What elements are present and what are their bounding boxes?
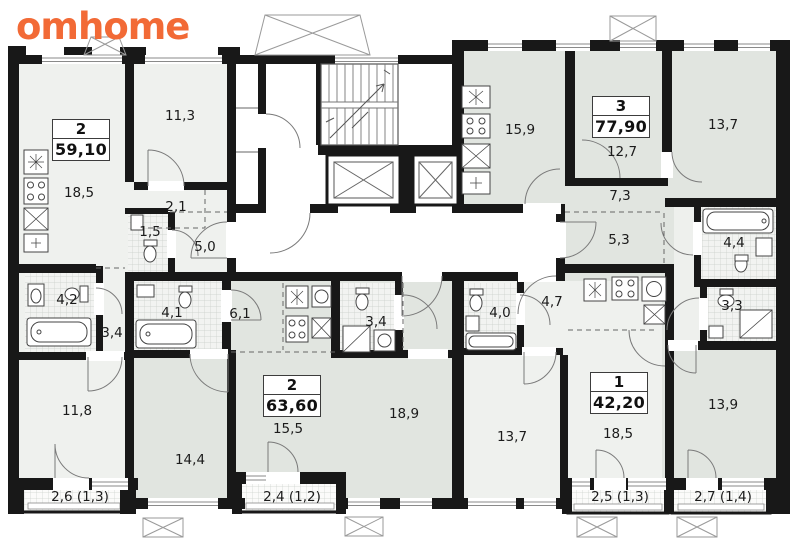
apartment-rooms-count: 2 [264, 376, 320, 395]
apartment-area: 77,90 [593, 116, 649, 137]
apartment-card[interactable]: 2 63,60 [263, 375, 321, 417]
room-label: 3,4 [101, 325, 122, 341]
room-label: 11,8 [62, 403, 92, 419]
room-label: 4,2 [56, 292, 77, 308]
room-label: 5,0 [194, 239, 215, 255]
elevator-right [413, 155, 458, 205]
apartment-area: 42,20 [591, 392, 647, 413]
room-label: 5,3 [608, 232, 629, 248]
apartment-rooms-count: 1 [591, 373, 647, 392]
balcony-label: 2,4 (1,2) [263, 489, 321, 505]
room-label: 4,1 [161, 305, 182, 321]
apartment-card[interactable]: 2 59,10 [52, 119, 110, 161]
room-label: 1,5 [139, 224, 160, 240]
omhome-logo[interactable]: omhome [16, 8, 189, 45]
balcony-label: 2,6 (1,3) [51, 489, 109, 505]
elevator-left [327, 155, 400, 205]
apartment-area: 59,10 [53, 139, 109, 160]
apartment-rooms-count: 3 [593, 97, 649, 116]
balcony-label: 2,5 (1,3) [591, 489, 649, 505]
room-label: 15,9 [505, 122, 535, 138]
floor-plan-drawing [0, 0, 800, 557]
room-label: 6,1 [229, 306, 250, 322]
balcony-label: 2,7 (1,4) [694, 489, 752, 505]
apartment-area: 63,60 [264, 395, 320, 416]
room-label: 18,9 [389, 406, 419, 422]
room-label: 4,4 [723, 235, 744, 251]
room-label: 18,5 [603, 426, 633, 442]
room-label: 15,5 [273, 421, 303, 437]
room-label: 3,3 [721, 298, 742, 314]
room-label: 13,9 [708, 397, 738, 413]
room-label: 13,7 [708, 117, 738, 133]
floor-plan-page: omhome [0, 0, 800, 557]
room-label: 4,0 [489, 305, 510, 321]
room-label: 18,5 [64, 185, 94, 201]
staircase [321, 64, 398, 145]
room-label: 11,3 [165, 108, 195, 124]
apartment-card[interactable]: 3 77,90 [592, 96, 650, 138]
room-label: 12,7 [607, 144, 637, 160]
room-label: 2,1 [165, 199, 186, 215]
room-label: 4,7 [541, 294, 562, 310]
apartment-card[interactable]: 1 42,20 [590, 372, 648, 414]
apartment-rooms-count: 2 [53, 120, 109, 139]
room-label: 14,4 [175, 452, 205, 468]
room-label: 3,4 [365, 314, 386, 330]
room-label: 13,7 [497, 429, 527, 445]
room-label: 7,3 [609, 188, 630, 204]
